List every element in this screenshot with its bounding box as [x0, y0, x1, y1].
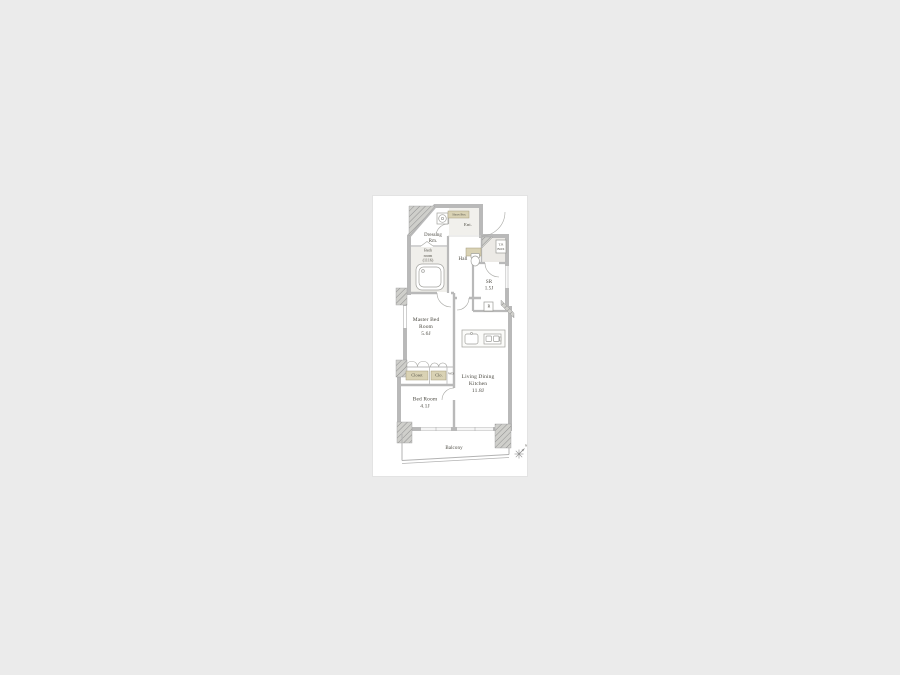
kitchen-sink-icon	[465, 333, 478, 345]
page-background: { "page": { "background": "#ebebeb", "ca…	[0, 0, 900, 675]
column-left-lower	[396, 360, 407, 377]
column-left-upper	[396, 288, 407, 305]
column-balcony-left	[397, 422, 412, 443]
closet-box	[406, 371, 428, 380]
trunk-box	[496, 240, 506, 253]
floorplan-drawing	[373, 196, 529, 478]
compass-icon	[515, 449, 525, 459]
washing-machine-icon	[437, 213, 448, 224]
shoes-box	[448, 211, 469, 218]
kitchen-counter	[462, 330, 505, 347]
stove-icon	[484, 334, 501, 344]
toilet-icon	[471, 254, 480, 267]
balcony-outline	[402, 433, 509, 464]
front-door-arc	[481, 212, 505, 236]
column-balcony-right	[495, 424, 511, 448]
clo-box	[431, 371, 446, 380]
floorplan-card: Dressing Rm. Ent. Shoes Box Bath room (1…	[372, 195, 528, 477]
refrigerator-box	[484, 302, 493, 311]
bathtub-icon	[416, 264, 444, 290]
